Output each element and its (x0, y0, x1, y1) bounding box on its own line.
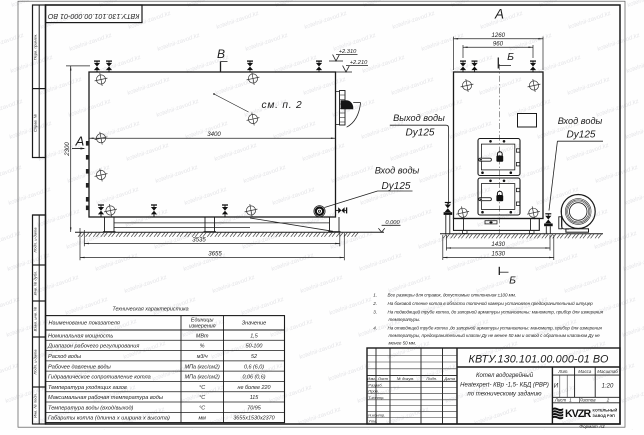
svg-text:3655: 3655 (208, 251, 222, 258)
svg-text:°С: °С (199, 395, 205, 401)
svg-text:KVZR: KVZR (565, 408, 591, 420)
svg-text:4.: 4. (373, 325, 377, 330)
svg-text:КВТУ.130.101.00.000-01 ВО: КВТУ.130.101.00.000-01 ВО (468, 354, 609, 366)
svg-text:Dy125: Dy125 (406, 128, 435, 139)
svg-text:°С: °С (199, 385, 205, 391)
svg-text:А: А (494, 7, 504, 22)
svg-text:Справ. №: Справ. № (33, 113, 38, 132)
svg-text:Т.контр.: Т.контр. (368, 395, 384, 400)
svg-text:Гидравлическое сопротивление к: Гидравлическое сопротивление котла (48, 375, 151, 381)
svg-text:Подп. и дата: Подп. и дата (33, 349, 38, 375)
svg-text:Б: Б (507, 51, 514, 63)
svg-text:На отводящей трубе котла ,до з: На отводящей трубе котла ,до запорной ар… (388, 324, 603, 330)
svg-text:0,6 (6,0): 0,6 (6,0) (244, 364, 264, 370)
svg-text:Максимальная рабочая температу: Максимальная рабочая температура воды (48, 395, 163, 401)
svg-text:Изм.: Изм. (367, 376, 376, 381)
svg-text:%: % (200, 344, 205, 350)
svg-text:3655х1530х2370: 3655х1530х2370 (233, 416, 274, 422)
svg-text:0.000: 0.000 (385, 220, 400, 226)
svg-text:1,5: 1,5 (250, 333, 258, 339)
svg-text:960: 960 (493, 40, 504, 47)
svg-text:Взам. инв. №: Взам. инв. № (33, 306, 38, 331)
svg-text:50-100: 50-100 (246, 344, 263, 350)
svg-text:Инв. № дубл.: Инв. № дубл. (33, 271, 38, 296)
svg-text:мм: мм (198, 416, 206, 422)
svg-text:1.: 1. (373, 292, 377, 297)
svg-text:52: 52 (251, 354, 257, 360)
svg-text:Лит.: Лит. (557, 369, 568, 374)
svg-text:Котел водогрейный: Котел водогрейный (476, 372, 534, 379)
svg-text:№ докум.: № докум. (397, 376, 415, 381)
svg-text:2: 2 (606, 398, 610, 403)
svg-text:2.: 2. (372, 301, 377, 306)
svg-text:Дата: Дата (443, 376, 455, 381)
svg-text:Вход воды: Вход воды (375, 166, 420, 176)
svg-text:Б: Б (509, 275, 516, 287)
svg-text:Инв. № подл.: Инв. № подл. (33, 393, 38, 418)
svg-text:115: 115 (250, 395, 260, 401)
svg-text:Пров.: Пров. (368, 389, 379, 394)
svg-text:2300: 2300 (64, 142, 71, 157)
svg-text:0,06 (0,6): 0,06 (0,6) (242, 375, 265, 381)
svg-text:Выход воды: Выход воды (393, 113, 445, 123)
svg-text:Диапазон рабочего регулировани: Диапазон рабочего регулирования (47, 344, 139, 350)
svg-text:Листов: Листов (579, 398, 597, 403)
svg-text:Все размеры для справок, допус: Все размеры для справок, допустимые откл… (388, 292, 517, 297)
svg-text:1:20: 1:20 (602, 384, 614, 390)
svg-text:МВт: МВт (196, 333, 209, 339)
svg-text:МПа (кгс/см2): МПа (кгс/см2) (185, 364, 220, 370)
svg-text:И: И (554, 383, 559, 390)
svg-text:Лист: Лист (554, 398, 567, 403)
svg-text:Перв. примен.: Перв. примен. (33, 34, 38, 61)
svg-text:Подп.: Подп. (426, 376, 437, 381)
svg-text:менее 50 мм.: менее 50 мм. (389, 340, 417, 345)
svg-text:Н.контр.: Н.контр. (368, 412, 385, 417)
svg-text:см. п. 2: см. п. 2 (261, 100, 302, 111)
svg-text:МПа (кгс/см2): МПа (кгс/см2) (185, 375, 220, 381)
svg-text:Наименование показателя: Наименование показателя (49, 320, 120, 326)
svg-text:Утв.: Утв. (368, 419, 377, 424)
svg-text:Dy125: Dy125 (567, 130, 596, 141)
svg-text:Значение: Значение (242, 320, 267, 326)
svg-text:по техническому заданию: по техническому заданию (467, 391, 542, 397)
svg-text:Температура уходящих газов: Температура уходящих газов (48, 385, 127, 391)
svg-text:КВТУ.130.101.00.000-01 ВО: КВТУ.130.101.00.000-01 ВО (48, 12, 140, 21)
svg-text:Номинальная мощность: Номинальная мощность (48, 333, 113, 339)
svg-text:Габариты котла (длинна х ширин: Габариты котла (длинна х ширина х высота… (48, 416, 170, 422)
svg-text:Вход воды: Вход воды (558, 116, 603, 126)
svg-text:Лист: Лист (377, 376, 389, 381)
svg-text:температуры.: температуры. (389, 317, 421, 322)
svg-text:А: А (75, 134, 85, 149)
svg-text:Dy125: Dy125 (382, 181, 411, 192)
svg-text:Подп. и дата: Подп. и дата (33, 227, 38, 253)
svg-text:не более 220: не более 220 (238, 385, 271, 391)
svg-text:На подводящей трубе котла, до: На подводящей трубе котла, до запорной а… (388, 309, 604, 315)
svg-text:Единицы: Единицы (191, 317, 214, 323)
svg-text:Разраб.: Разраб. (368, 383, 382, 388)
svg-text:КОТЕЛЬНЫЙ: КОТЕЛЬНЫЙ (593, 409, 618, 413)
svg-text:Техническая характеристика: Техническая характеристика (112, 306, 188, 312)
svg-text:3535: 3535 (192, 237, 206, 244)
svg-text:70/95: 70/95 (247, 405, 261, 411)
svg-text:Расход воды: Расход воды (48, 354, 81, 360)
svg-text:температуры, предохранительный: температуры, предохранительный клапан Ду… (389, 332, 601, 338)
svg-text:1260: 1260 (491, 32, 505, 39)
svg-text:3400: 3400 (207, 131, 221, 138)
svg-text:1530: 1530 (492, 251, 506, 258)
svg-text:+2.310: +2.310 (339, 49, 357, 55)
svg-text:Масса: Масса (578, 369, 592, 374)
svg-text:°С: °С (199, 405, 205, 411)
svg-text:3.: 3. (373, 310, 377, 315)
svg-text:Heatexpert- КВр -1,5- КБД (РВР: Heatexpert- КВр -1,5- КБД (РВР) (460, 382, 549, 388)
svg-text:1430: 1430 (491, 241, 505, 248)
svg-text:На боковой стенке котла в обла: На боковой стенке котла в области топочн… (388, 300, 594, 306)
svg-text:Рабочее давление воды: Рабочее давление воды (48, 364, 111, 370)
svg-text:измерения: измерения (189, 324, 216, 330)
svg-text:м3/ч: м3/ч (197, 354, 208, 360)
svg-text:В: В (217, 47, 225, 61)
svg-text:+2.210: +2.210 (350, 60, 368, 66)
svg-text:Масштаб: Масштаб (597, 369, 618, 374)
svg-text:Формат А3: Формат А3 (579, 424, 605, 429)
svg-text:ЗАВОД РЭП: ЗАВОД РЭП (593, 414, 616, 418)
svg-text:Температура воды (вход/выход): Температура воды (вход/выход) (48, 405, 134, 411)
